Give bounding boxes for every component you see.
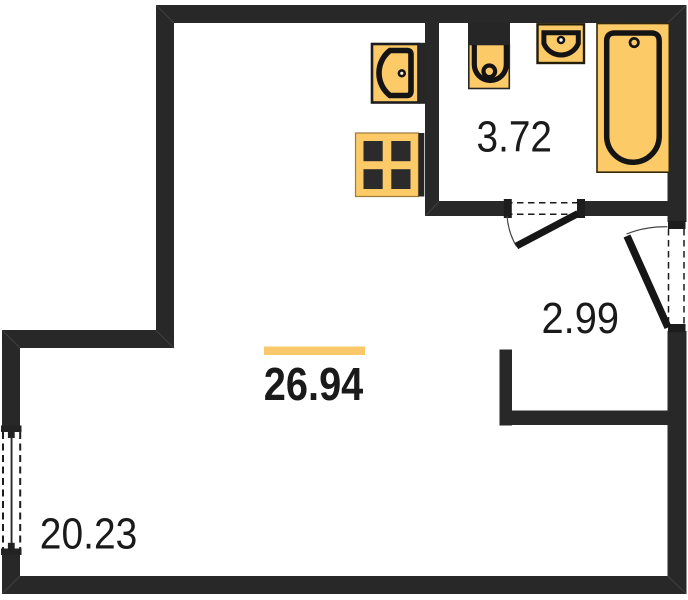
svg-text:3.72: 3.72 <box>477 114 553 162</box>
svg-text:26.94: 26.94 <box>264 358 364 410</box>
svg-text:2.99: 2.99 <box>542 295 620 343</box>
svg-text:20.23: 20.23 <box>40 511 138 559</box>
